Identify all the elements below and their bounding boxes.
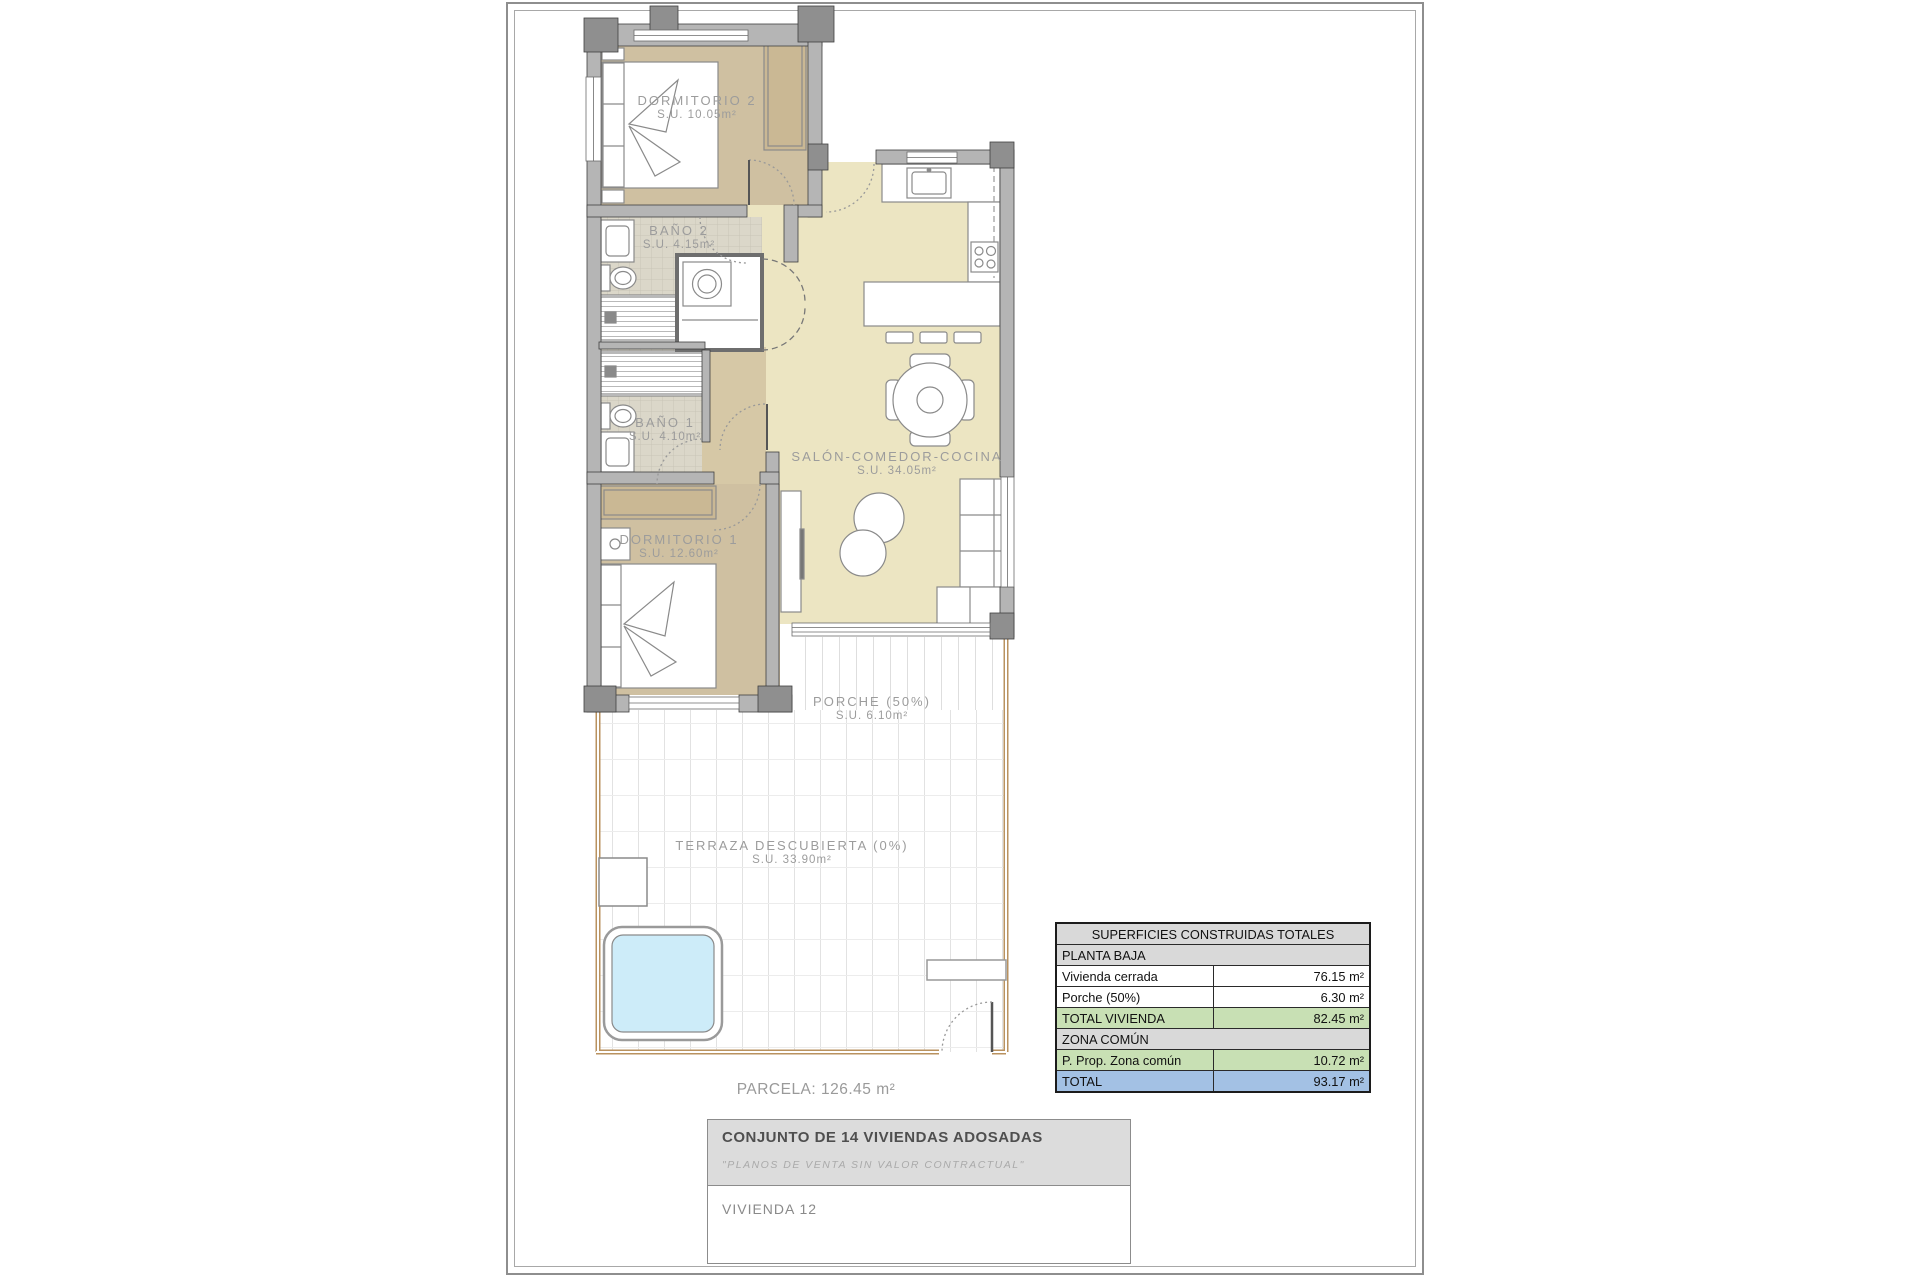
table-row: PLANTA BAJA <box>1056 945 1370 966</box>
terrace-storage-niche <box>599 858 647 906</box>
bed2-icon <box>602 48 718 203</box>
room-label-dormitorio2: DORMITORIO 2 S.U. 10.05m² <box>637 94 756 121</box>
room-label-porche: PORCHE (50%) S.U. 6.10m² <box>813 695 931 722</box>
table-row: Porche (50%) 6.30 m² <box>1056 987 1370 1008</box>
screenshot-canvas: DORMITORIO 2 S.U. 10.05m² BAÑO 2 S.U. 4.… <box>0 0 1920 1280</box>
armchair-icon <box>840 530 886 576</box>
table-row: ZONA COMÚN <box>1056 1029 1370 1050</box>
room-label-terraza: TERRAZA DESCUBIERTA (0%) S.U. 33.90m² <box>675 839 908 866</box>
table-row: TOTAL VIVIENDA 82.45 m² <box>1056 1008 1370 1029</box>
window-icon <box>907 152 957 163</box>
room-label-bano1: BAÑO 1 S.U. 4.10m² <box>629 416 701 443</box>
washer-icon <box>683 262 731 306</box>
window-icon <box>586 77 601 161</box>
areas-table: SUPERFICIES CONSTRUIDAS TOTALES PLANTA B… <box>1055 922 1371 1093</box>
kitchen-sink-icon <box>907 168 951 198</box>
areas-table-title: SUPERFICIES CONSTRUIDAS TOTALES <box>1056 923 1370 945</box>
parcela-label: PARCELA: 126.45 m² <box>737 1081 896 1099</box>
window-icon <box>634 30 748 41</box>
shower1-icon <box>599 351 705 396</box>
sliding-door-icon <box>792 623 990 636</box>
table-row: P. Prop. Zona común 10.72 m² <box>1056 1050 1370 1071</box>
laundry-closet <box>677 255 762 350</box>
disclaimer-text: "PLANOS DE VENTA SIN VALOR CONTRACTUAL" <box>722 1159 1116 1171</box>
table-row: TOTAL 93.17 m² <box>1056 1071 1370 1093</box>
stove-icon <box>971 242 998 272</box>
plan-sheet: DORMITORIO 2 S.U. 10.05m² BAÑO 2 S.U. 4.… <box>506 2 1424 1275</box>
window-icon <box>629 697 739 709</box>
title-block-header: CONJUNTO DE 14 VIVIENDAS ADOSADAS "PLANO… <box>708 1120 1130 1186</box>
bar-stool-icon <box>886 332 913 343</box>
room-label-dormitorio1: DORMITORIO 1 S.U. 12.60m² <box>619 533 738 560</box>
corridor-floor <box>702 347 766 484</box>
title-block: CONJUNTO DE 14 VIVIENDAS ADOSADAS "PLANO… <box>707 1119 1131 1264</box>
bar-stool-icon <box>920 332 947 343</box>
pool-icon <box>604 927 722 1040</box>
room-label-salon: SALÓN-COMEDOR-COCINA S.U. 34.05m² <box>791 450 1002 477</box>
sink2-icon <box>601 220 634 262</box>
project-title: CONJUNTO DE 14 VIVIENDAS ADOSADAS <box>722 1129 1116 1146</box>
bed1-icon <box>600 564 716 688</box>
title-block-body: VIVIENDA 12 <box>708 1186 1130 1263</box>
table-row: Vivienda cerrada 76.15 m² <box>1056 966 1370 987</box>
tv-unit-icon <box>781 491 804 612</box>
kitchen-island <box>864 282 1000 326</box>
bar-stool-icon <box>954 332 981 343</box>
toilet2-icon <box>601 265 636 291</box>
unit-label: VIVIENDA 12 <box>722 1201 1116 1217</box>
room-label-bano2: BAÑO 2 S.U. 4.15m² <box>643 224 715 251</box>
window-icon <box>1001 477 1014 587</box>
terrace-bench <box>927 960 1006 980</box>
